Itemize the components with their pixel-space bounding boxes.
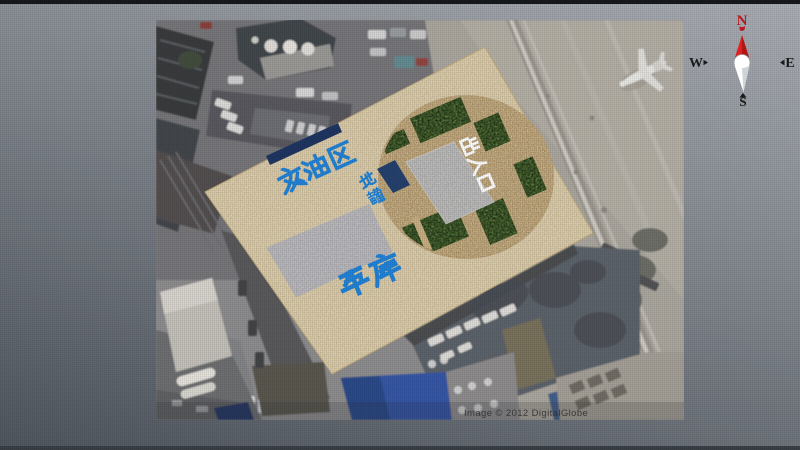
svg-text:S: S — [739, 94, 746, 109]
svg-text:E: E — [785, 56, 794, 71]
svg-text:N: N — [737, 13, 748, 29]
svg-text:W: W — [689, 56, 703, 71]
